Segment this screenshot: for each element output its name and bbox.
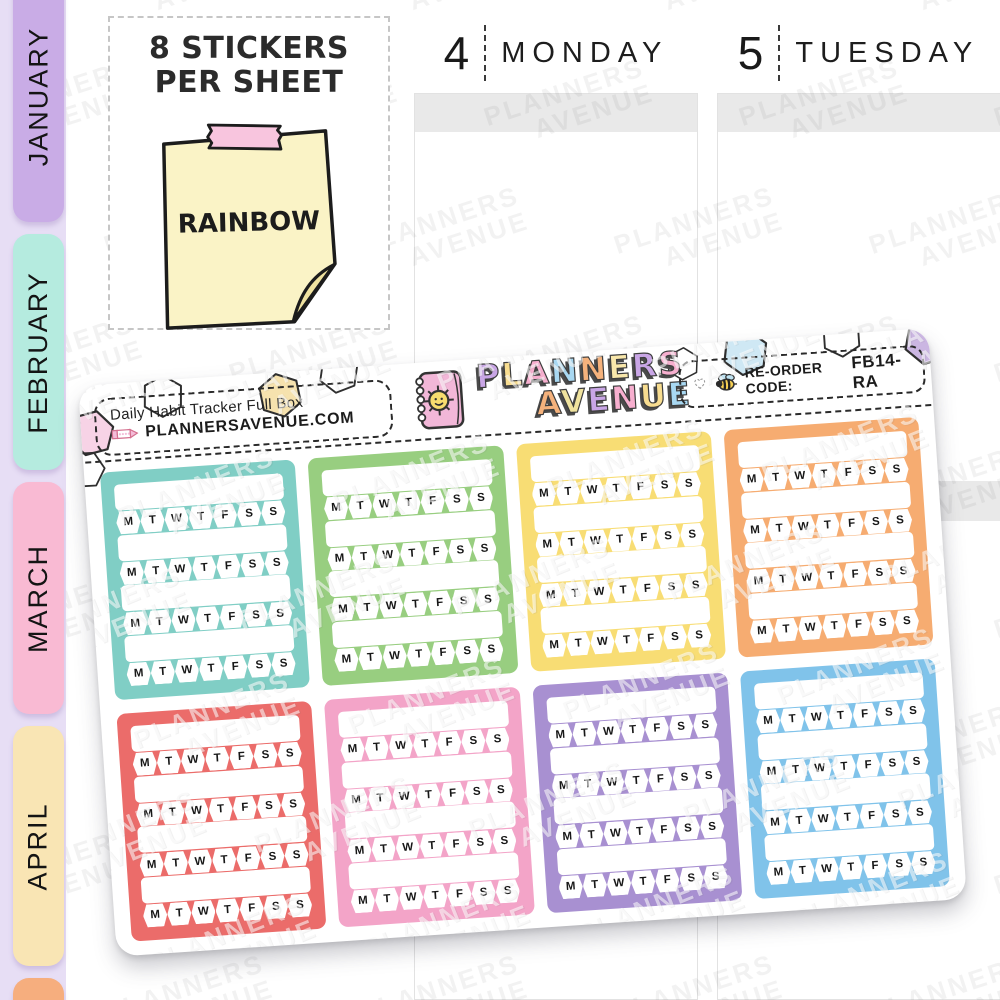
day-hexagon: T: [396, 491, 422, 516]
day-hexagon: F: [839, 511, 865, 536]
day-header-monday: 4 MONDAY: [414, 20, 698, 86]
day-hexagon: F: [232, 795, 258, 820]
day-hexagon: S: [467, 830, 493, 855]
day-hexagon: T: [364, 736, 390, 761]
day-hexagon: W: [167, 557, 193, 582]
day-hexagon: S: [652, 473, 678, 498]
month-tabs: JANUARYFEBRUARYMARCHAPRIL: [0, 0, 66, 1000]
day-hexagon: T: [620, 718, 646, 743]
day-hexagon: S: [492, 828, 518, 853]
day-hexagon: F: [651, 818, 677, 843]
day-hexagon: F: [862, 854, 888, 879]
day-hexagon: M: [535, 532, 561, 557]
month-tab-label: FEBRUARY: [23, 271, 54, 434]
day-hexagon: T: [412, 732, 438, 757]
day-hexagon: M: [334, 647, 360, 672]
day-hexagon: T: [767, 516, 793, 541]
day-hexagon: W: [583, 529, 609, 554]
day-hexagon: W: [814, 857, 840, 882]
day-hexagon: W: [187, 849, 213, 874]
day-hexagon: T: [163, 851, 189, 876]
product-image: 4 MONDAY 5 TUESDAY PLANNERSAVENUEPLANNER…: [0, 0, 1000, 1000]
day-hexagon: S: [461, 729, 487, 754]
habit-tracker-box: MTWTFSSMTWTFSSMTWTFSSMTWTFSS: [308, 445, 518, 686]
day-hexagon: S: [277, 742, 303, 767]
month-tab-label: JANUARY: [23, 26, 54, 166]
day-hexagon: S: [488, 778, 514, 803]
day-hexagon: W: [379, 594, 405, 619]
tape-icon: [207, 123, 282, 151]
day-hexagon: F: [638, 627, 664, 652]
logo-line-avenue: AVENUE: [535, 377, 693, 420]
day-hexagon: T: [211, 848, 237, 873]
day-hexagon: M: [548, 723, 574, 748]
day-hexagon: F: [842, 562, 868, 587]
day-hexagon: M: [330, 597, 356, 622]
habit-tracker-box: MTWTFSSMTWTFSSMTWTFSSMTWTFSS: [324, 687, 534, 928]
day-hexagon: T: [150, 660, 176, 685]
day-hexagon: M: [132, 751, 158, 776]
day-hexagon: S: [686, 623, 712, 648]
logo-letter: V: [559, 381, 588, 421]
day-hexagon: F: [236, 846, 262, 871]
day-number: 4: [444, 26, 470, 80]
logo-letter: L: [500, 355, 525, 394]
day-hexagon: T: [195, 606, 221, 631]
day-hexagon: T: [192, 556, 218, 581]
day-hexagon: S: [287, 893, 313, 918]
day-hexagon: M: [350, 889, 376, 914]
day-hexagon: T: [140, 508, 166, 533]
day-hexagon: S: [904, 750, 930, 775]
day-hexagon: F: [219, 604, 245, 629]
day-hexagon: S: [891, 559, 917, 584]
day-hexagon: T: [358, 646, 384, 671]
day-hexagon: T: [354, 595, 380, 620]
day-hexagon: T: [582, 873, 608, 898]
day-hexagon: S: [884, 458, 910, 483]
day-hexagon: S: [264, 551, 290, 576]
day-hexagon: S: [693, 713, 719, 738]
day-hexagon: W: [794, 565, 820, 590]
day-hexagon: S: [662, 625, 688, 650]
day-hexagon: S: [479, 638, 505, 663]
month-tab-february: FEBRUARY: [13, 234, 64, 470]
day-hexagon: T: [367, 786, 393, 811]
day-hexagon: M: [739, 467, 765, 492]
day-hexagon: S: [887, 508, 913, 533]
day-name: MONDAY: [501, 37, 668, 70]
day-hexagon: T: [215, 898, 241, 923]
day-hexagon: S: [867, 560, 893, 585]
day-hexagon: S: [679, 867, 705, 892]
day-hexagon: S: [860, 459, 886, 484]
day-number: 5: [738, 26, 764, 80]
day-hexagon: T: [811, 463, 837, 488]
day-hexagon: S: [703, 865, 729, 890]
day-hexagon: S: [876, 701, 902, 726]
day-hexagon: S: [495, 879, 521, 904]
day-hexagon: F: [447, 882, 473, 907]
day-hexagon: W: [184, 799, 210, 824]
day-hexagon: F: [855, 753, 881, 778]
day-hexagon: T: [156, 750, 182, 775]
day-hexagon: F: [635, 576, 661, 601]
day-hexagon: T: [403, 592, 429, 617]
day-hexagon: F: [216, 554, 242, 579]
day-hexagon: S: [263, 895, 289, 920]
day-hexagon: M: [558, 875, 584, 900]
day-hexagon: F: [644, 716, 670, 741]
day-hexagon: T: [783, 758, 809, 783]
planners-avenue-logo: PLANNERS AVENUE: [475, 346, 693, 424]
habit-tracker-box: MTWTFSSMTWTFSSMTWTFSSMTWTFSS: [100, 459, 310, 700]
logo-letter: P: [475, 356, 503, 396]
day-hexagon: T: [835, 805, 861, 830]
day-hexagon: S: [676, 472, 702, 497]
day-hexagon: T: [419, 833, 445, 858]
day-hexagon: S: [894, 609, 920, 634]
day-hexagon: S: [256, 794, 282, 819]
day-hexagon: T: [566, 632, 592, 657]
day-hexagon: T: [831, 755, 857, 780]
sticker-grid: MTWTFSSMTWTFSSMTWTFSSMTWTFSSMTWTFSSMTWTF…: [100, 417, 950, 942]
day-hexagon: T: [780, 707, 806, 732]
habit-tracker-box: MTWTFSSMTWTFSSMTWTFSSMTWTFSS: [532, 673, 742, 914]
sticker-count-line1: 8 STICKERS: [110, 32, 388, 66]
bee-icon: [713, 369, 739, 395]
day-hexagon: S: [253, 743, 279, 768]
sticker-count-text: 8 STICKERS PER SHEET: [110, 32, 388, 100]
day-hexagon: S: [485, 727, 511, 752]
day-hexagon: S: [451, 589, 477, 614]
day-name: TUESDAY: [795, 37, 979, 70]
column-header-band: [718, 94, 1000, 132]
day-hexagon: S: [454, 639, 480, 664]
day-hexagon: S: [448, 538, 474, 563]
day-hexagon: T: [188, 505, 214, 530]
day-hexagon: S: [472, 536, 498, 561]
day-hexagon: F: [836, 461, 862, 486]
day-hexagon: T: [198, 657, 224, 682]
day-hexagon: M: [762, 810, 788, 835]
day-hexagon: T: [818, 564, 844, 589]
sticker-count-panel: 8 STICKERS PER SHEET RAINBOW: [108, 16, 390, 330]
day-hexagon: W: [791, 515, 817, 540]
day-hexagon: M: [343, 788, 369, 813]
day-hexagon: M: [742, 518, 768, 543]
day-hexagon: M: [766, 861, 792, 886]
day-hexagon: M: [749, 619, 775, 644]
day-hexagon: T: [815, 513, 841, 538]
day-hexagon: M: [347, 838, 373, 863]
day-hexagon: S: [883, 802, 909, 827]
day-hexagon: F: [440, 781, 466, 806]
day-hexagon: F: [852, 702, 878, 727]
day-hexagon: F: [420, 489, 446, 514]
day-separator-dashed-line: [484, 25, 486, 81]
day-hexagon: W: [798, 616, 824, 641]
day-hexagon: S: [444, 488, 470, 513]
day-hexagon: W: [171, 608, 197, 633]
logo-letter: N: [610, 377, 641, 417]
month-tab-march: MARCH: [13, 482, 64, 714]
day-hexagon: M: [531, 482, 557, 507]
day-hexagon: M: [116, 510, 142, 535]
day-hexagon: W: [804, 706, 830, 731]
day-hexagon: T: [572, 721, 598, 746]
day-hexagon: S: [668, 715, 694, 740]
day-hexagon: T: [351, 545, 377, 570]
day-header-tuesday: 5 TUESDAY: [717, 20, 1000, 86]
day-hexagon: F: [648, 767, 674, 792]
day-hexagon: T: [559, 531, 585, 556]
day-hexagon: T: [348, 494, 374, 519]
day-hexagon: F: [423, 540, 449, 565]
day-hexagon: S: [243, 603, 269, 628]
day-hexagon: S: [271, 652, 297, 677]
day-hexagon: W: [174, 658, 200, 683]
day-hexagon: T: [208, 797, 234, 822]
day-hexagon: T: [562, 581, 588, 606]
day-hexagon: W: [372, 492, 398, 517]
habit-tracker-box: MTWTFSSMTWTFSSMTWTFSSMTWTFSS: [116, 701, 326, 942]
reorder-label: RE-ORDER CODE:: [744, 358, 846, 397]
habit-tracker-box: MTWTFSSMTWTFSSMTWTFSSMTWTFSS: [723, 417, 933, 658]
day-hexagon: S: [696, 764, 722, 789]
day-hexagon: S: [236, 502, 262, 527]
month-tab-april: APRIL: [13, 726, 64, 966]
day-hexagon: S: [471, 881, 497, 906]
day-hexagon: S: [280, 792, 306, 817]
day-hexagon: S: [267, 601, 293, 626]
day-hexagon: T: [160, 800, 186, 825]
month-tab-label: MARCH: [23, 544, 54, 653]
day-hexagon: F: [212, 503, 238, 528]
day-hexagon: M: [746, 569, 772, 594]
day-hexagon: S: [260, 844, 286, 869]
day-hexagon: W: [590, 630, 616, 655]
day-hexagon: S: [863, 510, 889, 535]
day-hexagon: T: [610, 578, 636, 603]
day-hexagon: S: [699, 814, 725, 839]
day-hexagon: S: [240, 552, 266, 577]
day-hexagon: W: [599, 770, 625, 795]
day-hexagon: S: [655, 524, 681, 549]
month-tab-next: [13, 978, 64, 1000]
day-hexagon: T: [167, 901, 193, 926]
sticker-count-line2: PER SHEET: [110, 66, 388, 100]
day-hexagon: F: [229, 745, 255, 770]
month-tab-january: JANUARY: [13, 0, 64, 222]
day-hexagon: T: [627, 819, 653, 844]
day-hexagon: S: [911, 851, 937, 876]
heart-icon: [693, 375, 707, 392]
reorder-box: RE-ORDER CODE: FB14-RA: [678, 344, 927, 409]
day-hexagon: W: [596, 720, 622, 745]
day-hexagon: W: [807, 756, 833, 781]
day-hexagon: F: [443, 832, 469, 857]
logo-letter: U: [639, 376, 670, 416]
habit-tracker-box: MTWTFSSMTWTFSSMTWTFSSMTWTFSS: [740, 658, 950, 899]
day-hexagon: T: [624, 769, 650, 794]
notebook-icon: [408, 366, 470, 434]
day-hexagon: S: [284, 843, 310, 868]
day-hexagon: T: [822, 614, 848, 639]
column-header-band: [415, 94, 697, 132]
day-hexagon: T: [374, 887, 400, 912]
logo-letter: A: [535, 383, 562, 423]
day-hexagon: T: [607, 527, 633, 552]
day-hexagon: F: [631, 526, 657, 551]
day-hexagon: S: [464, 780, 490, 805]
day-hexagon: S: [907, 800, 933, 825]
day-hexagon: W: [191, 900, 217, 925]
day-hexagon: S: [247, 653, 273, 678]
day-hexagon: S: [870, 611, 896, 636]
sticky-note-label: RAINBOW: [166, 206, 333, 240]
day-hexagon: M: [123, 611, 149, 636]
day-hexagon: T: [147, 609, 173, 634]
logo-letter: E: [586, 379, 612, 419]
day-hexagon: T: [838, 856, 864, 881]
day-hexagon: T: [399, 541, 425, 566]
day-hexagon: F: [239, 897, 265, 922]
day-hexagon: T: [575, 772, 601, 797]
day-hexagon: S: [468, 486, 494, 511]
day-hexagon: S: [659, 575, 685, 600]
day-hexagon: W: [398, 886, 424, 911]
day-hexagon: M: [327, 546, 353, 571]
day-hexagon: F: [846, 613, 872, 638]
day-hexagon: T: [786, 808, 812, 833]
day-hexagon: F: [628, 475, 654, 500]
sticker-sheet: Daily Habit Tracker Full Box PLANNERSAVE…: [78, 328, 967, 957]
day-hexagon: T: [604, 477, 630, 502]
day-hexagon: M: [755, 709, 781, 734]
day-hexagon: T: [579, 823, 605, 848]
day-hexagon: T: [614, 628, 640, 653]
day-hexagon: S: [900, 699, 926, 724]
sticky-note: RAINBOW: [149, 118, 345, 338]
pencil-icon: [111, 427, 139, 441]
day-hexagon: W: [579, 478, 605, 503]
day-hexagon: W: [388, 734, 414, 759]
day-hexagon: T: [143, 559, 169, 584]
day-hexagon: W: [603, 821, 629, 846]
day-hexagon: T: [416, 783, 442, 808]
day-hexagon: M: [538, 583, 564, 608]
day-hexagon: F: [436, 731, 462, 756]
month-tab-label: APRIL: [23, 802, 54, 890]
day-hexagon: S: [475, 587, 501, 612]
day-hexagon: W: [811, 807, 837, 832]
day-hexagon: M: [759, 759, 785, 784]
day-hexagon: M: [142, 903, 168, 928]
day-hexagon: W: [164, 507, 190, 532]
day-hexagon: W: [787, 464, 813, 489]
day-hexagon: M: [323, 496, 349, 521]
day-hexagon: T: [828, 704, 854, 729]
day-hexagon: M: [119, 561, 145, 586]
day-hexagon: T: [555, 480, 581, 505]
day-hexagon: W: [606, 871, 632, 896]
day-hexagon: F: [430, 641, 456, 666]
habit-tracker-box: MTWTFSSMTWTFSSMTWTFSSMTWTFSS: [515, 431, 725, 672]
day-hexagon: W: [382, 644, 408, 669]
day-hexagon: M: [340, 737, 366, 762]
day-hexagon: S: [261, 500, 287, 525]
day-hexagon: T: [770, 567, 796, 592]
day-hexagon: S: [679, 522, 705, 547]
day-hexagon: M: [139, 853, 165, 878]
day-hexagon: W: [375, 543, 401, 568]
day-separator-dashed-line: [778, 25, 780, 81]
day-hexagon: M: [136, 802, 162, 827]
day-hexagon: T: [763, 466, 789, 491]
day-hexagon: F: [655, 868, 681, 893]
day-hexagon: W: [392, 784, 418, 809]
day-hexagon: T: [630, 870, 656, 895]
day-hexagon: T: [205, 746, 231, 771]
day-hexagon: T: [790, 859, 816, 884]
day-hexagon: F: [223, 655, 249, 680]
day-hexagon: S: [672, 765, 698, 790]
day-hexagon: W: [586, 579, 612, 604]
day-hexagon: T: [406, 643, 432, 668]
day-hexagon: S: [675, 816, 701, 841]
day-hexagon: T: [371, 837, 397, 862]
day-hexagon: T: [773, 618, 799, 643]
day-hexagon: W: [395, 835, 421, 860]
day-hexagon: S: [683, 573, 709, 598]
day-hexagon: M: [555, 824, 581, 849]
day-hexagon: S: [880, 751, 906, 776]
reorder-code: FB14-RA: [851, 349, 912, 393]
day-hexagon: S: [886, 852, 912, 877]
day-hexagon: M: [126, 662, 152, 687]
day-hexagon: M: [551, 774, 577, 799]
day-hexagon: F: [859, 803, 885, 828]
day-hexagon: W: [180, 748, 206, 773]
day-hexagon: M: [542, 633, 568, 658]
day-hexagon: T: [423, 884, 449, 909]
day-hexagon: F: [427, 590, 453, 615]
